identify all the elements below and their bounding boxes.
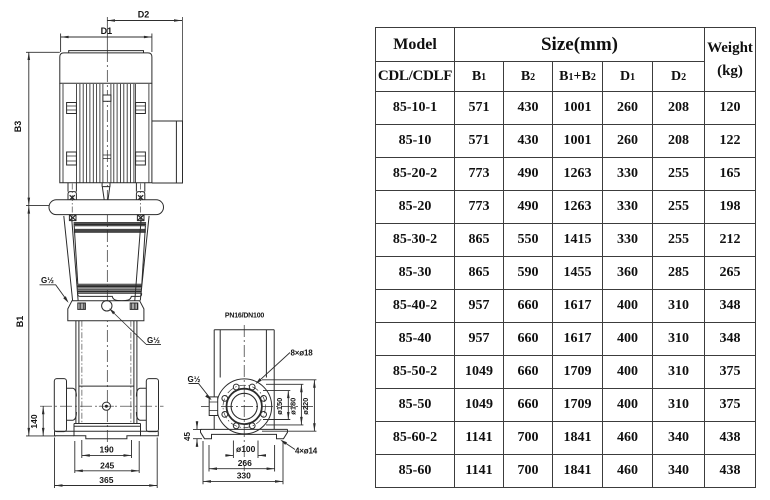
svg-text:B3: B3 <box>13 121 23 133</box>
svg-text:245: 245 <box>100 461 114 471</box>
svg-text:D2: D2 <box>138 10 150 20</box>
svg-text:ø220: ø220 <box>301 398 310 415</box>
svg-text:G½: G½ <box>41 276 54 285</box>
svg-text:266: 266 <box>238 458 252 468</box>
svg-text:365: 365 <box>99 475 113 485</box>
svg-text:ø100: ø100 <box>236 444 256 454</box>
svg-text:330: 330 <box>237 471 251 481</box>
svg-text:4×ø14: 4×ø14 <box>295 447 318 456</box>
svg-text:190: 190 <box>100 444 114 454</box>
svg-text:ø150: ø150 <box>275 398 284 415</box>
svg-text:B1: B1 <box>15 316 25 328</box>
svg-text:8×ø18: 8×ø18 <box>291 349 314 358</box>
svg-text:G½: G½ <box>188 375 201 384</box>
svg-text:D1: D1 <box>101 26 113 36</box>
svg-text:G½: G½ <box>147 336 160 345</box>
svg-text:PN16/DN100: PN16/DN100 <box>225 313 265 320</box>
svg-text:ø180: ø180 <box>288 398 297 415</box>
svg-text:140: 140 <box>29 414 39 428</box>
svg-text:45: 45 <box>183 432 192 441</box>
